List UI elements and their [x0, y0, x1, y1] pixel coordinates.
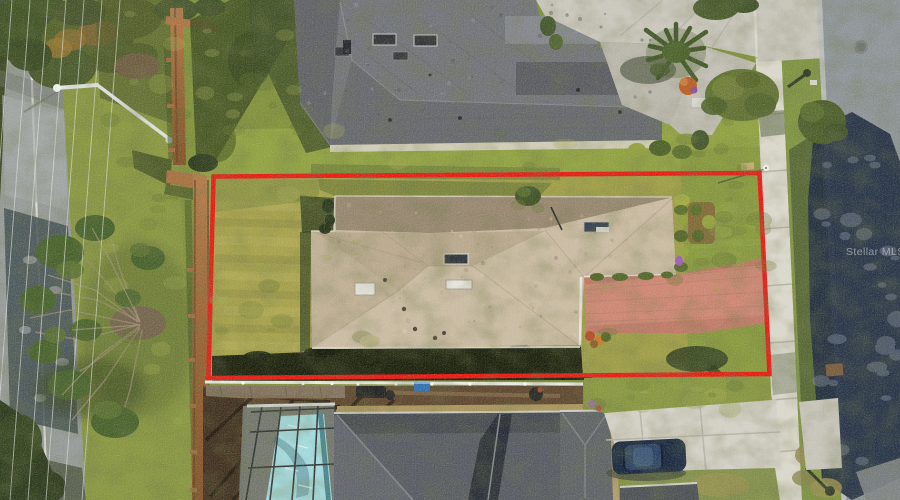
svg-text:Stellar MLS: Stellar MLS	[846, 246, 900, 258]
